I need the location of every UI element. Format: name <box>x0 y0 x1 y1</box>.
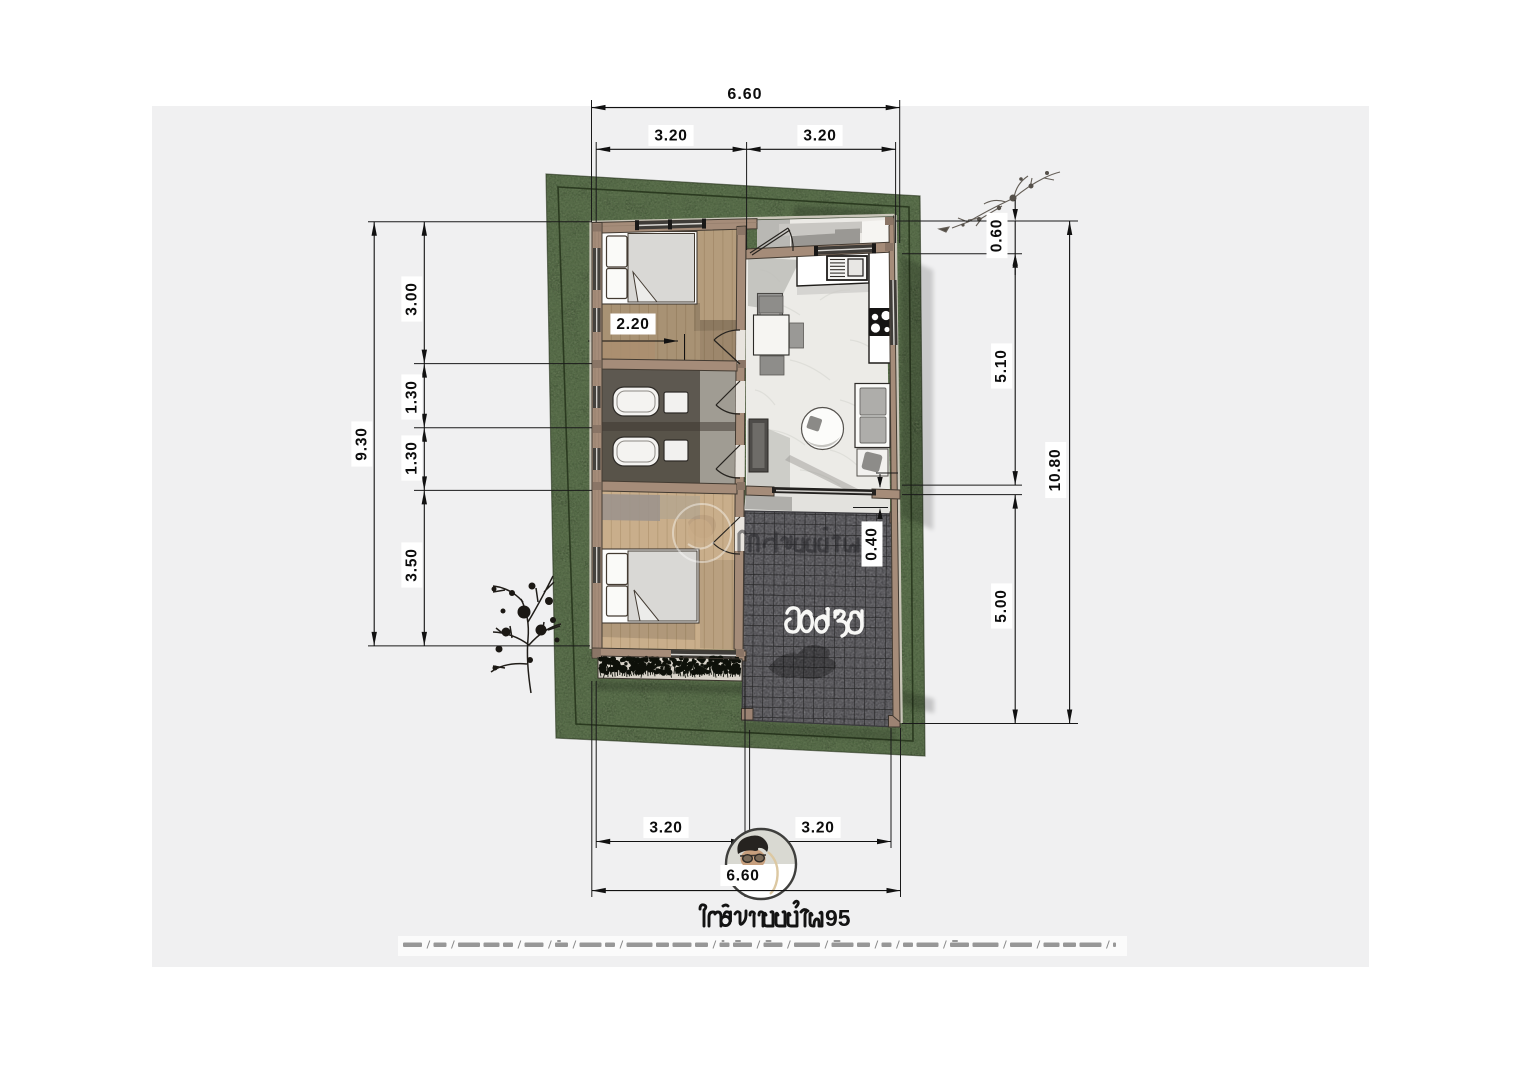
svg-text:1.30: 1.30 <box>403 441 420 474</box>
svg-text:1.30: 1.30 <box>403 380 420 413</box>
svg-text:5.10: 5.10 <box>993 349 1010 382</box>
svg-text:3.20: 3.20 <box>654 128 687 145</box>
svg-text:3.20: 3.20 <box>801 820 834 837</box>
svg-text:0.40: 0.40 <box>864 527 881 560</box>
svg-text:3.50: 3.50 <box>403 548 420 581</box>
svg-text:3.00: 3.00 <box>403 282 420 315</box>
svg-text:6.60: 6.60 <box>727 86 762 103</box>
svg-text:5.00: 5.00 <box>993 589 1010 622</box>
svg-text:95: 95 <box>825 905 851 931</box>
svg-text:9.30: 9.30 <box>353 427 370 460</box>
svg-text:0.60: 0.60 <box>989 219 1006 252</box>
svg-text:6.60: 6.60 <box>726 868 759 885</box>
svg-text:3.20: 3.20 <box>649 820 682 837</box>
svg-text:10.80: 10.80 <box>1047 449 1064 492</box>
svg-text:3.20: 3.20 <box>803 128 836 145</box>
svg-text:2.20: 2.20 <box>616 316 649 333</box>
